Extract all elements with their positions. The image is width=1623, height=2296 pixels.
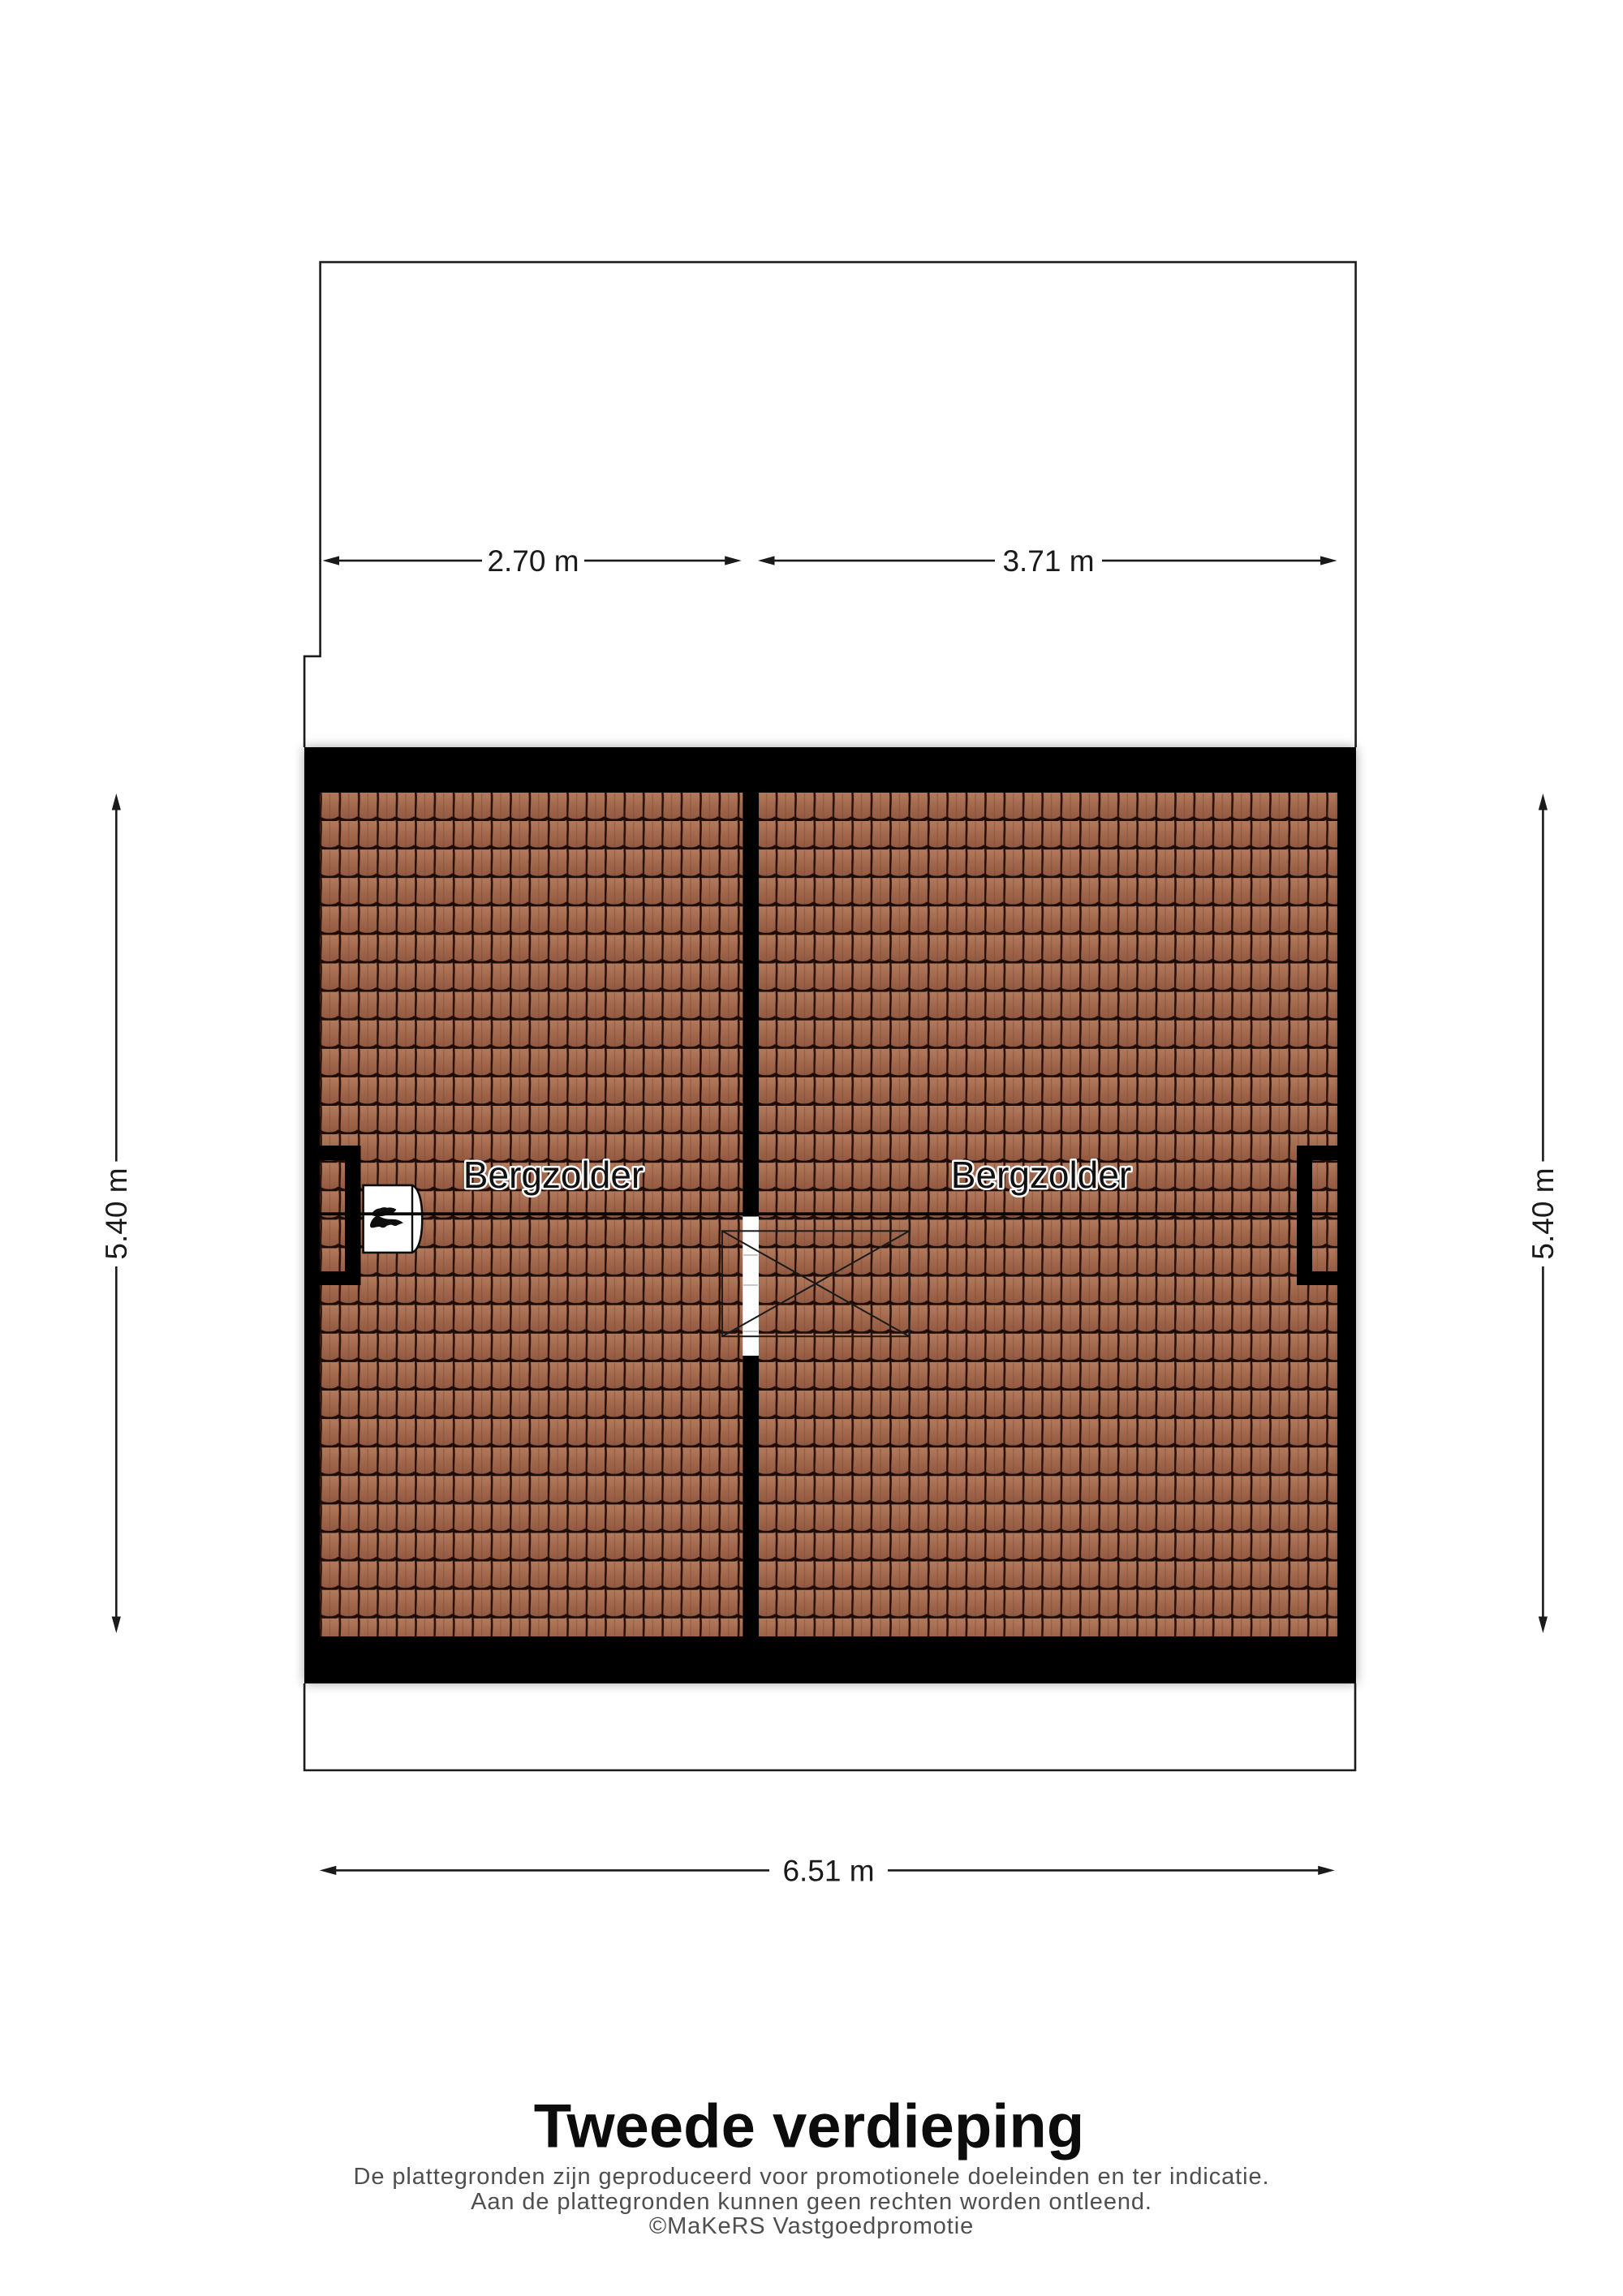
svg-text:2.70 m: 2.70 m <box>487 544 579 578</box>
svg-text:De plattegronden zijn geproduc: De plattegronden zijn geproduceerd voor … <box>354 2164 1270 2190</box>
svg-text:6.51 m: 6.51 m <box>782 1854 874 1887</box>
svg-text:5.40 m: 5.40 m <box>100 1167 133 1259</box>
svg-text:©MaKeRS Vastgoedpromotie: ©MaKeRS Vastgoedpromotie <box>649 2213 974 2239</box>
svg-text:Bergzolder: Bergzolder <box>463 1154 644 1196</box>
svg-text:3.71 m: 3.71 m <box>1002 544 1094 578</box>
svg-text:5.40 m: 5.40 m <box>1526 1167 1560 1259</box>
svg-text:Bergzolder: Bergzolder <box>951 1154 1131 1196</box>
svg-text:Aan de plattegronden kunnen ge: Aan de plattegronden kunnen geen rechten… <box>471 2189 1152 2215</box>
svg-text:Tweede verdieping: Tweede verdieping <box>534 2092 1085 2161</box>
